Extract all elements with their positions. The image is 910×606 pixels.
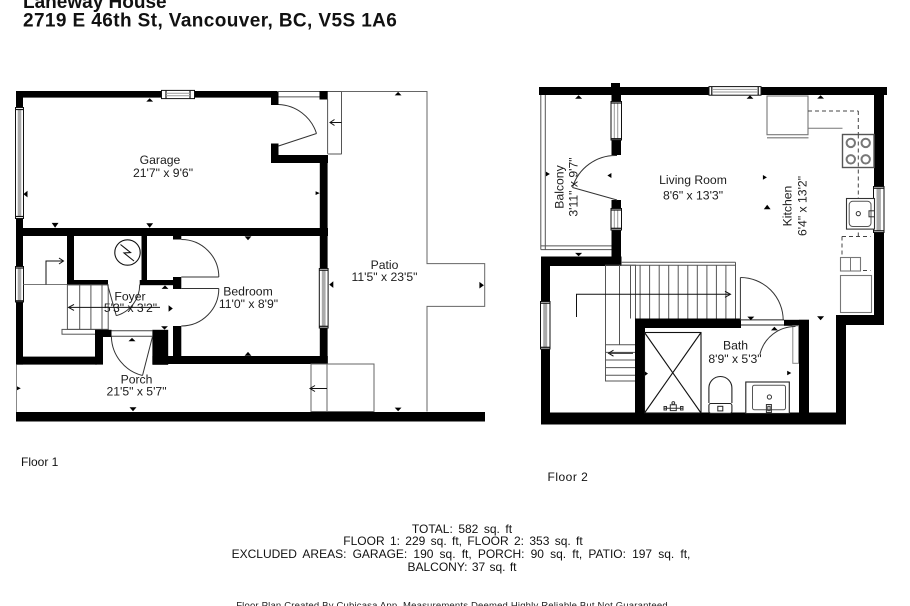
svg-text:8'6" x 13'3": 8'6" x 13'3" [663, 189, 723, 203]
svg-text:Floor Plan Created By Cubicasa: Floor Plan Created By Cubicasa App, Meas… [236, 601, 668, 606]
svg-text:FLOOR 1: 229 sq. ft, FLOOR 2:: FLOOR 1: 229 sq. ft, FLOOR 2: 353 sq. ft [343, 534, 583, 548]
svg-text:5'3" x 3'2": 5'3" x 3'2" [104, 301, 157, 315]
svg-text:Bath: Bath [723, 339, 748, 353]
svg-text:Garage: Garage [140, 153, 181, 167]
svg-text:Balcony: Balcony [553, 164, 567, 208]
svg-text:11'5" x 23'5": 11'5" x 23'5" [352, 270, 418, 284]
svg-text:Floor 2: Floor 2 [548, 470, 589, 484]
svg-text:8'9" x 5'3": 8'9" x 5'3" [708, 352, 761, 366]
svg-text:3'11" x 9'7": 3'11" x 9'7" [567, 157, 581, 216]
svg-text:21'7" x 9'6": 21'7" x 9'6" [133, 166, 193, 180]
svg-text:Kitchen: Kitchen [781, 186, 795, 227]
svg-text:2719 E 46th St, Vancouver, BC,: 2719 E 46th St, Vancouver, BC, V5S 1A6 [23, 11, 397, 32]
svg-text:EXCLUDED AREAS: GARAGE: 190 sq: EXCLUDED AREAS: GARAGE: 190 sq. ft, PORC… [232, 547, 691, 561]
svg-text:21'5" x 5'7": 21'5" x 5'7" [106, 385, 166, 399]
svg-text:6'4" x 13'2": 6'4" x 13'2" [796, 176, 810, 236]
svg-text:11'0" x 8'9": 11'0" x 8'9" [219, 297, 278, 311]
svg-text:Living Room: Living Room [659, 173, 727, 187]
svg-text:Floor 1: Floor 1 [21, 455, 59, 469]
svg-text:BALCONY: 37 sq. ft: BALCONY: 37 sq. ft [407, 560, 517, 574]
